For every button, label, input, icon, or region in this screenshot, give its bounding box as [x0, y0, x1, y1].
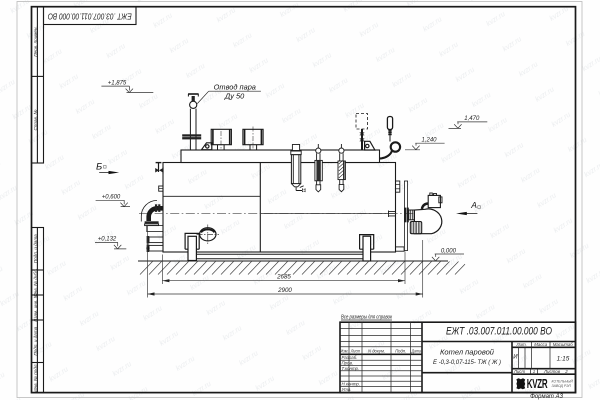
svg-text:Лист: Лист — [350, 348, 361, 353]
svg-text:Перв. примен.: Перв. примен. — [33, 26, 38, 57]
svg-text:Лит.: Лит. — [516, 342, 527, 347]
svg-text:Лист: Лист — [513, 369, 526, 374]
svg-text:Е -0,3-0,07-115- ТЖ ( Ж ): Е -0,3-0,07-115- ТЖ ( Ж ) — [433, 359, 501, 366]
svg-text:Н.контр.: Н.контр. — [342, 382, 361, 387]
svg-text:А: А — [470, 200, 477, 210]
svg-text:1,470: 1,470 — [464, 116, 480, 122]
svg-text:Б: Б — [96, 162, 102, 173]
svg-text:N докум.: N докум. — [368, 348, 385, 353]
svg-text:0,000: 0,000 — [441, 248, 457, 254]
svg-text:Инв. № дубл.: Инв. № дубл. — [33, 268, 38, 296]
svg-text:2900: 2900 — [277, 287, 292, 294]
svg-text:Формат А3: Формат А3 — [530, 394, 563, 400]
svg-text:Отвод пара: Отвод пара — [214, 83, 256, 92]
svg-text:Котел паровой: Котел паровой — [440, 348, 494, 357]
svg-text:Утв.: Утв. — [342, 387, 352, 392]
svg-text:КОТЕЛЬНЫЙ: КОТЕЛЬНЫЙ — [552, 379, 574, 383]
svg-text:Изм.: Изм. — [341, 348, 349, 353]
svg-text:1:15: 1:15 — [557, 356, 570, 363]
svg-text:2: 2 — [564, 369, 568, 374]
svg-text:Листов: Листов — [543, 369, 561, 374]
svg-text:Инв. № подл.: Инв. № подл. — [33, 363, 38, 392]
svg-text:Пров.: Пров. — [342, 361, 354, 366]
svg-text:ЕЖТ .03.007.011.00.000 ВО: ЕЖТ .03.007.011.00.000 ВО — [446, 326, 552, 338]
svg-text:Масштаб: Масштаб — [553, 342, 574, 347]
svg-text:И: И — [513, 354, 518, 360]
svg-text:KVZR: KVZR — [527, 376, 548, 391]
svg-text:Разраб.: Разраб. — [342, 355, 358, 360]
svg-text:Масса: Масса — [534, 342, 548, 347]
svg-text:Дата: Дата — [411, 348, 422, 353]
svg-text:Т.контр.: Т.контр. — [342, 366, 360, 371]
svg-text:ЗАВОД РЭП: ЗАВОД РЭП — [552, 384, 572, 388]
svg-text:Подп. и дата: Подп. и дата — [33, 234, 38, 263]
svg-text:Справ. №: Справ. № — [33, 110, 38, 131]
svg-text:ЕЖТ .03.007.011.00.000 ВО: ЕЖТ .03.007.011.00.000 ВО — [48, 12, 132, 21]
svg-text:Подп.: Подп. — [395, 348, 406, 353]
svg-text:2685: 2685 — [276, 274, 291, 281]
svg-text:+1,875: +1,875 — [108, 80, 127, 86]
svg-text:Ду 50: Ду 50 — [224, 91, 245, 100]
svg-text:Подп. и дата: Подп. и дата — [33, 326, 38, 355]
svg-text:+0,132: +0,132 — [98, 237, 117, 243]
svg-text:+0,600: +0,600 — [102, 195, 121, 201]
svg-text:Взам. инв. №: Взам. инв. № — [33, 293, 38, 321]
svg-text:Все размеры для справок: Все размеры для справок — [341, 315, 392, 321]
svg-text:1,240: 1,240 — [421, 138, 437, 144]
